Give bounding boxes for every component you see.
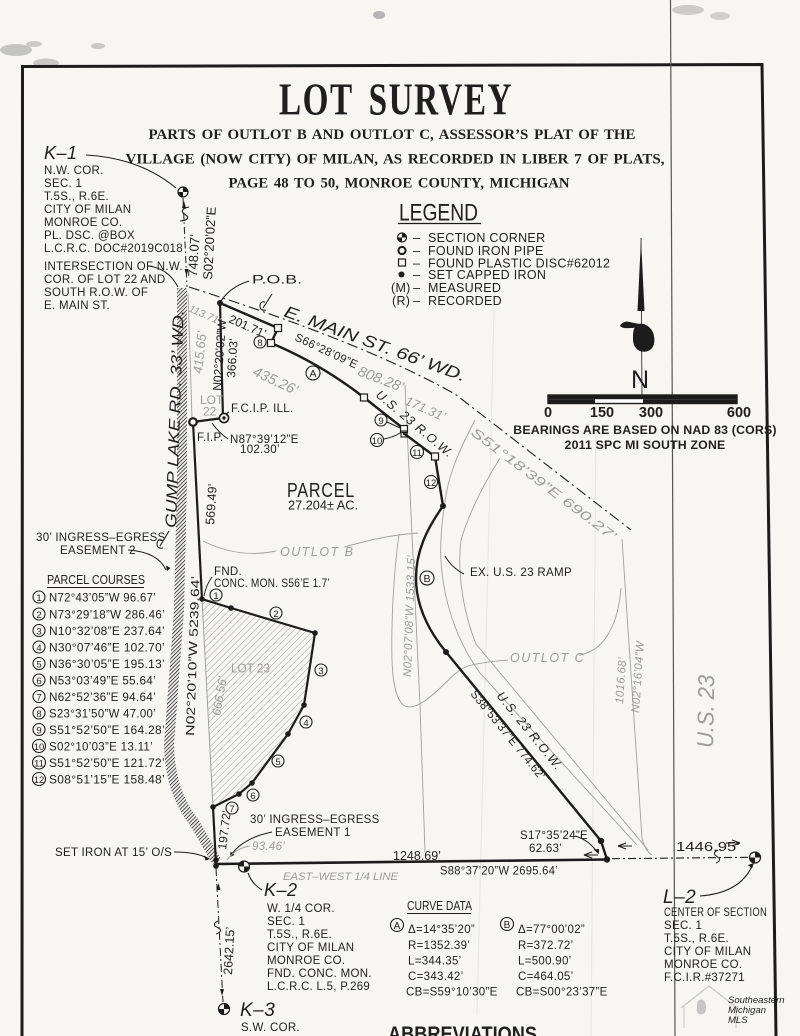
svg-text:L=500.90’: L=500.90’: [518, 956, 572, 968]
svg-text:SEC. 1: SEC. 1: [664, 920, 702, 932]
svg-text:SECTION CORNER: SECTION CORNER: [428, 231, 545, 245]
svg-text:SOUTH R.O.W. OF: SOUTH R.O.W. OF: [44, 287, 148, 299]
svg-text:EASEMENT 1: EASEMENT 1: [275, 827, 351, 839]
svg-text:F.C.I.P. ILL.: F.C.I.P. ILL.: [231, 403, 294, 415]
svg-text:2642.15’: 2642.15’: [221, 927, 237, 976]
svg-text:CITY OF MILAN: CITY OF MILAN: [44, 204, 131, 216]
svg-text:30’ INGRESS–EGRESS: 30’ INGRESS–EGRESS: [36, 532, 166, 544]
svg-text:300: 300: [639, 405, 663, 421]
svg-text:9: 9: [378, 416, 383, 427]
svg-text:SET CAPPED IRON: SET CAPPED IRON: [428, 268, 546, 282]
svg-text:VILLAGE (NOW CITY) OF MILAN, A: VILLAGE (NOW CITY) OF MILAN, AS RECORDED…: [126, 152, 665, 168]
svg-text:S02°10’03”E 13.11’: S02°10’03”E 13.11’: [49, 742, 153, 754]
svg-text:3: 3: [36, 627, 41, 638]
svg-text:8: 8: [36, 709, 41, 720]
svg-text:5: 5: [275, 757, 280, 768]
svg-text:N36°30’05”E 195.13’: N36°30’05”E 195.13’: [49, 659, 165, 671]
svg-text:F.I.P.: F.I.P.: [197, 432, 224, 444]
svg-text:CB=S59°10’30”E: CB=S59°10’30”E: [406, 987, 498, 999]
svg-text:10: 10: [34, 742, 45, 753]
svg-text:T.5S., R.6E.: T.5S., R.6E.: [44, 191, 109, 203]
svg-text:3: 3: [318, 666, 323, 677]
svg-text:FND.: FND.: [214, 566, 242, 578]
svg-text:PL. DSC. @BOX: PL. DSC. @BOX: [44, 230, 135, 242]
svg-text:Δ=77°00’02”: Δ=77°00’02”: [518, 924, 585, 936]
svg-text:OUTLOT C: OUTLOT C: [510, 651, 585, 665]
svg-text:2: 2: [273, 609, 278, 620]
svg-text:CONC. MON. S56’E 1.7’: CONC. MON. S56’E 1.7’: [214, 578, 330, 590]
svg-text:T.5S., R.6E.: T.5S., R.6E.: [664, 933, 729, 945]
svg-text:MONROE CO.: MONROE CO.: [267, 955, 345, 967]
svg-text:K–3: K–3: [240, 1000, 275, 1021]
svg-text:L.C.R.C. L.5, P.269: L.C.R.C. L.5, P.269: [267, 981, 370, 993]
svg-text:30’ INGRESS–EGRESS: 30’ INGRESS–EGRESS: [250, 814, 380, 826]
svg-text:F.C.I.R.#37271: F.C.I.R.#37271: [664, 972, 745, 984]
svg-text:22: 22: [203, 405, 217, 419]
svg-text:BEARINGS ARE BASED ON NAD 83 (: BEARINGS ARE BASED ON NAD 83 (CORS): [513, 423, 776, 437]
svg-text:C=464.05’: C=464.05’: [518, 971, 573, 983]
svg-text:S08°51’15”E 158.48’: S08°51’15”E 158.48’: [49, 775, 165, 787]
svg-text:SEC. 1: SEC. 1: [267, 916, 305, 928]
svg-text:150: 150: [590, 405, 614, 421]
svg-text:SEC. 1: SEC. 1: [44, 178, 82, 190]
svg-text:MONROE CO.: MONROE CO.: [44, 217, 122, 229]
svg-text:LOT SURVEY: LOT SURVEY: [279, 75, 513, 125]
svg-text:SET IRON AT 15’ O/S: SET IRON AT 15’ O/S: [55, 847, 172, 859]
svg-text:L.C.R.C. DOC#2019C018: L.C.R.C. DOC#2019C018: [44, 243, 183, 255]
svg-text:MLS: MLS: [728, 1015, 748, 1026]
svg-text:COR. OF LOT 22 AND: COR. OF LOT 22 AND: [44, 274, 166, 286]
svg-text:U.S. 23: U.S. 23: [692, 674, 719, 748]
svg-text:R=1352.39’: R=1352.39’: [408, 940, 470, 952]
svg-text:EAST–WEST 1/4 LINE: EAST–WEST 1/4 LINE: [283, 871, 399, 883]
svg-text:S51°52’50”E 164.28’: S51°52’50”E 164.28’: [49, 725, 165, 737]
svg-text:Δ=14°35’20”: Δ=14°35’20”: [408, 924, 475, 936]
svg-text:6: 6: [36, 676, 41, 687]
svg-text:12: 12: [34, 775, 45, 786]
svg-text:11: 11: [34, 759, 44, 770]
svg-text:E. MAIN ST.: E. MAIN ST.: [44, 300, 110, 312]
svg-text:CITY OF MILAN: CITY OF MILAN: [267, 942, 354, 954]
svg-text:7: 7: [229, 804, 234, 815]
svg-text:L–2: L–2: [663, 887, 696, 908]
svg-text:FND. CONC. MON.: FND. CONC. MON.: [267, 968, 372, 980]
svg-text:S.W. COR.: S.W. COR.: [241, 1022, 300, 1034]
svg-text:ABBREVIATIONS: ABBREVIATIONS: [388, 1023, 537, 1036]
svg-text:MONROE CO.: MONROE CO.: [664, 959, 742, 971]
svg-text:9: 9: [36, 726, 41, 737]
svg-text:4: 4: [36, 643, 41, 654]
svg-text:CITY OF MILAN: CITY OF MILAN: [664, 946, 751, 958]
svg-text:N73°29’18”W 286.46’: N73°29’18”W 286.46’: [49, 610, 165, 622]
svg-text:A: A: [394, 921, 401, 932]
svg-text:S51°52’50”E 121.72’: S51°52’50”E 121.72’: [49, 758, 165, 770]
svg-text:K–2: K–2: [264, 880, 298, 900]
svg-text:W. 1/4 COR.: W. 1/4 COR.: [267, 903, 335, 915]
svg-text:2011 SPC MI SOUTH ZONE: 2011 SPC MI SOUTH ZONE: [565, 438, 726, 452]
svg-text:–: –: [413, 281, 420, 295]
svg-text:1248.69’: 1248.69’: [393, 849, 441, 863]
svg-text:PARCEL COURSES: PARCEL COURSES: [47, 572, 145, 587]
svg-text:L=344.35’: L=344.35’: [408, 956, 462, 968]
svg-text:1446.95’: 1446.95’: [676, 840, 740, 854]
svg-text:600: 600: [727, 405, 751, 421]
svg-text:2: 2: [36, 610, 41, 621]
svg-text:–: –: [413, 268, 420, 282]
svg-text:27.204± AC.: 27.204± AC.: [288, 499, 358, 513]
svg-text:B: B: [504, 920, 511, 931]
svg-text:(M): (M): [391, 281, 411, 295]
svg-text:LEGEND: LEGEND: [399, 200, 478, 227]
svg-text:102.30’: 102.30’: [240, 444, 280, 456]
svg-text:569.49’: 569.49’: [203, 483, 220, 525]
svg-text:OUTLOT B: OUTLOT B: [280, 545, 355, 559]
svg-text:EASEMENT 2: EASEMENT 2: [60, 545, 136, 557]
svg-text:N53°03’49”E 55.64’: N53°03’49”E 55.64’: [49, 676, 156, 688]
svg-text:–: –: [413, 294, 420, 308]
svg-text:1: 1: [213, 591, 218, 602]
svg-text:6: 6: [250, 791, 255, 802]
svg-text:INTERSECTION OF N.W.: INTERSECTION OF N.W.: [44, 261, 183, 273]
svg-text:PARTS OF OUTLOT B AND OUTLOT C: PARTS OF OUTLOT B AND OUTLOT C, ASSESSOR…: [149, 127, 636, 143]
svg-text:S88°37’20”W 2695.64’: S88°37’20”W 2695.64’: [440, 866, 558, 878]
svg-text:CB=S00°23’37”E: CB=S00°23’37”E: [516, 987, 608, 999]
svg-text:P.O.B.: P.O.B.: [252, 273, 302, 287]
svg-text:(R): (R): [392, 294, 410, 308]
svg-text:5: 5: [36, 660, 41, 671]
svg-text:0: 0: [544, 405, 552, 421]
svg-text:LOT 23: LOT 23: [231, 661, 270, 676]
svg-text:11: 11: [412, 448, 422, 459]
svg-text:366.03’: 366.03’: [224, 338, 241, 378]
svg-text:–: –: [413, 231, 420, 245]
svg-text:PAGE 48 TO 50, MONROE COUNTY,: PAGE 48 TO 50, MONROE COUNTY, MICHIGAN: [229, 176, 570, 192]
svg-text:N30°07’46”E 102.70’: N30°07’46”E 102.70’: [49, 643, 165, 655]
svg-text:93.46’: 93.46’: [252, 841, 285, 853]
svg-text:RECORDED: RECORDED: [428, 294, 502, 308]
svg-text:4: 4: [303, 718, 308, 729]
svg-text:R=372.72’: R=372.72’: [518, 940, 573, 952]
svg-text:1: 1: [36, 593, 41, 604]
svg-text:CENTER OF SECTION: CENTER OF SECTION: [664, 907, 767, 919]
svg-text:S17°35’24”E: S17°35’24”E: [520, 830, 588, 842]
svg-text:CURVE DATA: CURVE DATA: [407, 898, 472, 913]
svg-text:8: 8: [257, 338, 262, 349]
svg-text:N.W. COR.: N.W. COR.: [44, 165, 104, 177]
svg-text:62.63’: 62.63’: [529, 843, 562, 855]
svg-text:C=343.42’: C=343.42’: [408, 971, 463, 983]
svg-text:B: B: [423, 573, 430, 585]
svg-text:7: 7: [36, 693, 41, 704]
svg-text:N72°43’05”W 96.67’: N72°43’05”W 96.67’: [49, 593, 156, 605]
svg-text:A: A: [309, 368, 316, 380]
svg-text:MEASURED: MEASURED: [428, 281, 501, 295]
svg-text:N: N: [631, 366, 649, 394]
svg-text:K–1: K–1: [44, 143, 78, 163]
svg-text:12: 12: [426, 478, 437, 489]
svg-text:10: 10: [372, 436, 383, 447]
svg-text:N62°52’36”E 94.64’: N62°52’36”E 94.64’: [49, 692, 156, 704]
svg-text:T.5S., R.6E.: T.5S., R.6E.: [267, 929, 332, 941]
svg-text:N10°32’08”E 237.64’: N10°32’08”E 237.64’: [49, 626, 165, 638]
svg-text:EX. U.S. 23 RAMP: EX. U.S. 23 RAMP: [470, 567, 572, 579]
svg-text:S23°31’50”W 47.00’: S23°31’50”W 47.00’: [49, 709, 156, 721]
